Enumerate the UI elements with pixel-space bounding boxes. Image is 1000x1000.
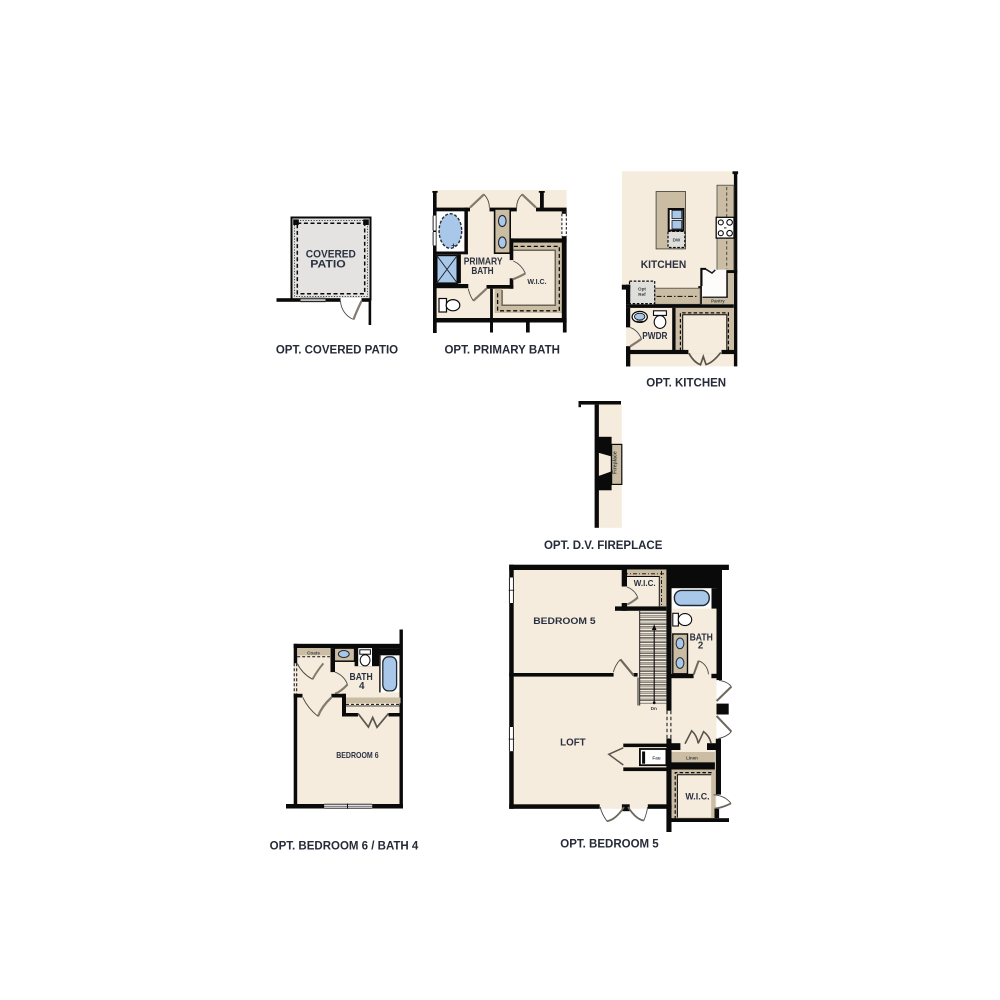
svg-text:OPT. COVERED PATIO: OPT. COVERED PATIO xyxy=(276,345,398,357)
svg-text:Dn: Dn xyxy=(651,706,657,712)
svg-text:Coats: Coats xyxy=(307,650,320,655)
svg-text:PATIO: PATIO xyxy=(310,258,346,270)
svg-text:OPT. BEDROOM 6 / BATH 4: OPT. BEDROOM 6 / BATH 4 xyxy=(270,841,419,853)
svg-text:BEDROOM 5: BEDROOM 5 xyxy=(533,616,596,627)
svg-text:W.I.C.: W.I.C. xyxy=(527,279,546,286)
svg-text:OPT. D.V. FIREPLACE: OPT. D.V. FIREPLACE xyxy=(544,540,663,552)
svg-text:OPT. BEDROOM 5: OPT. BEDROOM 5 xyxy=(560,839,659,851)
svg-text:Opt: Opt xyxy=(638,287,646,292)
svg-text:Linen: Linen xyxy=(686,756,698,761)
svg-text:LOFT: LOFT xyxy=(560,737,586,748)
svg-text:2: 2 xyxy=(698,640,703,651)
svg-text:Pantry: Pantry xyxy=(711,299,725,304)
svg-text:OPT. PRIMARY BATH: OPT. PRIMARY BATH xyxy=(444,345,559,357)
svg-text:PWDR: PWDR xyxy=(642,331,667,342)
svg-text:DW: DW xyxy=(673,238,681,243)
svg-text:KITCHEN: KITCHEN xyxy=(641,259,687,271)
svg-text:W.I.C.: W.I.C. xyxy=(685,791,709,801)
svg-text:W.I.C.: W.I.C. xyxy=(634,579,656,588)
svg-text:Ref: Ref xyxy=(638,292,646,297)
svg-text:BATH: BATH xyxy=(471,266,493,277)
svg-text:Fau: Fau xyxy=(652,756,660,761)
svg-text:BEDROOM 6: BEDROOM 6 xyxy=(336,750,379,760)
svg-text:Fireplace: Fireplace xyxy=(613,451,619,474)
svg-text:OPT. KITCHEN: OPT. KITCHEN xyxy=(646,377,726,389)
svg-text:4: 4 xyxy=(359,681,365,692)
